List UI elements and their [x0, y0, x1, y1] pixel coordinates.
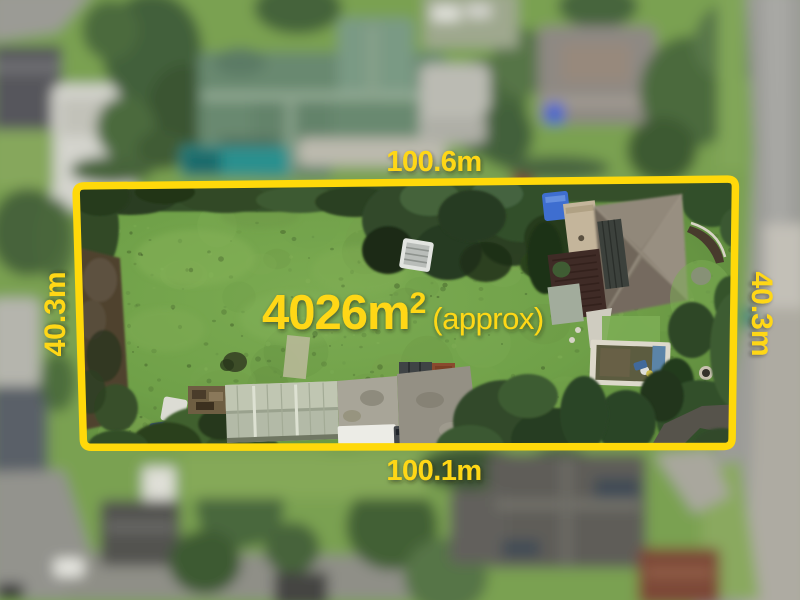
svg-text:100.1m: 100.1m: [386, 455, 481, 487]
svg-text:40.3m: 40.3m: [39, 271, 72, 356]
svg-text:40.3m: 40.3m: [745, 271, 778, 356]
svg-text:100.6m: 100.6m: [386, 146, 481, 178]
